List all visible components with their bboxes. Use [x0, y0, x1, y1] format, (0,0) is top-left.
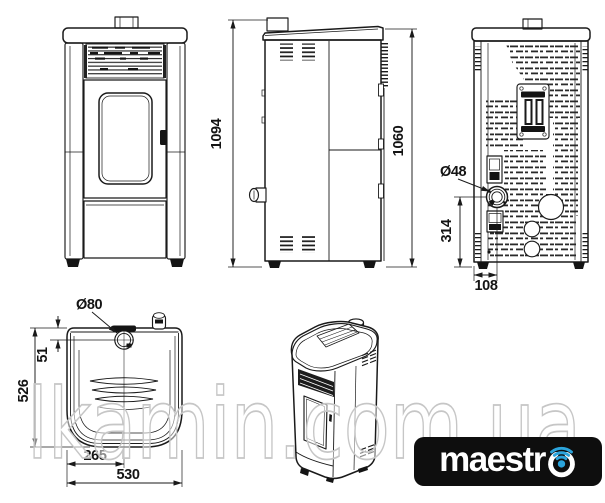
back-view [472, 19, 590, 269]
dimension-back-flue-height-label: 314 [439, 219, 455, 242]
mounting-plate [517, 84, 549, 139]
maestro-logo: maestr [414, 437, 602, 486]
technical-drawing-svg: 1094 1060 [0, 0, 605, 503]
door-handle [160, 130, 167, 145]
front-view [63, 17, 187, 267]
air-intake-knob [250, 188, 267, 202]
side-view [250, 18, 389, 268]
dimension-back-flue-offset-label: 108 [475, 278, 498, 294]
lower-bracket [487, 211, 503, 232]
stove-dimension-drawing: 1094 1060 [0, 0, 605, 503]
dimension-side-body-height: 1060 [385, 29, 417, 267]
dimension-side-total-height-label: 1094 [209, 118, 225, 149]
flue-outlet [487, 187, 508, 208]
air-inlet-circle [539, 195, 564, 220]
dimension-back-flue-diameter: Ø48 [440, 164, 490, 192]
dimension-side-total-height: 1094 [209, 20, 268, 267]
dimension-top-flue-diameter-label: Ø80 [76, 297, 103, 313]
dimension-back-flue-diameter-label: Ø48 [440, 164, 467, 180]
power-switch [487, 156, 502, 183]
dimension-top-flue-front-offset-label: 51 [35, 347, 51, 363]
brand-name: maestr [439, 442, 545, 477]
wifi-o-icon [546, 443, 577, 478]
top-flue [112, 326, 136, 351]
dimension-top-flue-front-offset: 51 [35, 316, 115, 363]
dimension-side-body-height-label: 1060 [391, 125, 407, 156]
top-knob [153, 313, 166, 329]
